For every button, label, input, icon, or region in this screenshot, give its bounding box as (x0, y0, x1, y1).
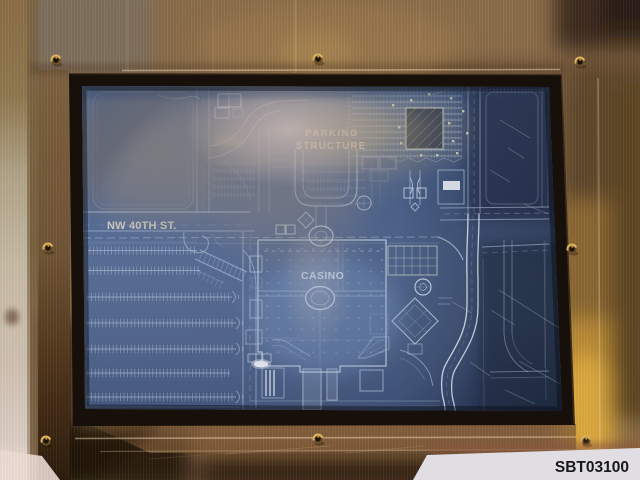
svg-text:SBT03100: SBT03100 (555, 459, 629, 476)
